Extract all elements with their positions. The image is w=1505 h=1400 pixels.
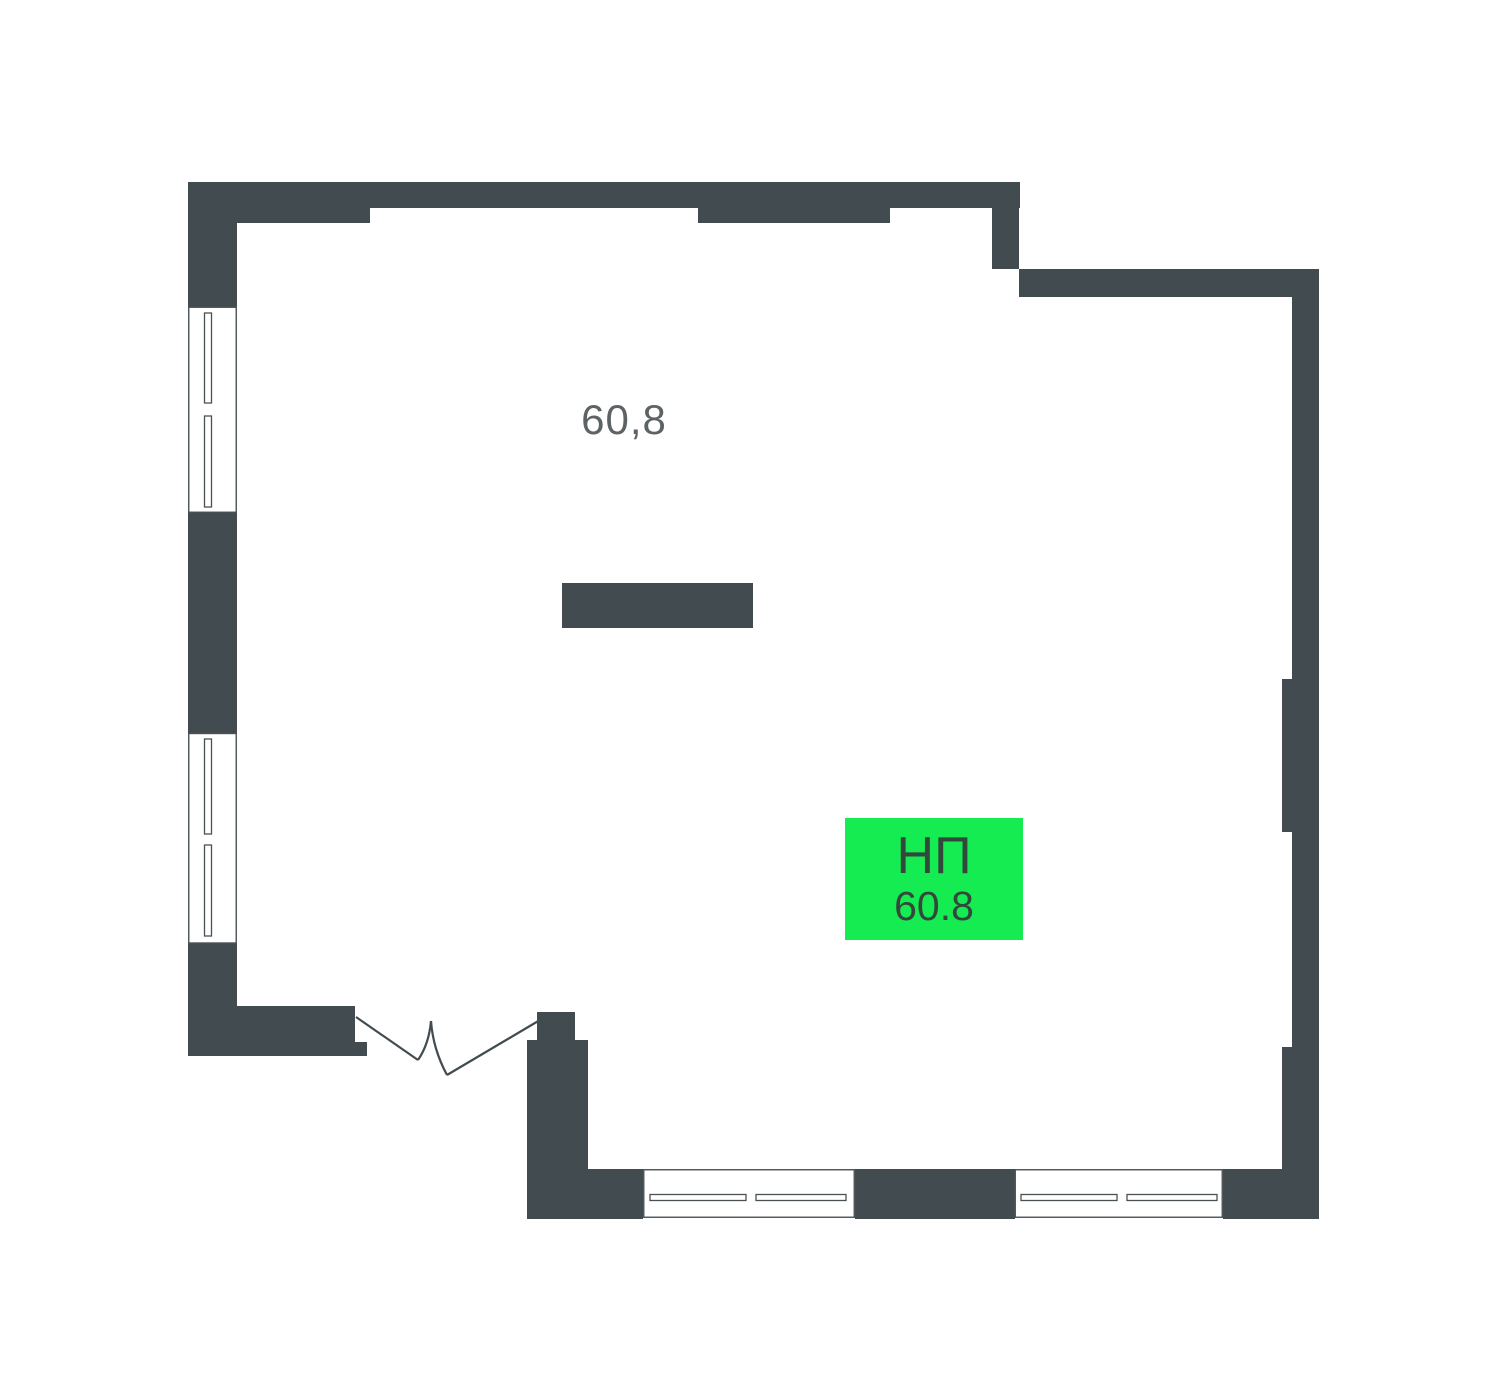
unit-badge[interactable]: НП 60.8	[845, 818, 1023, 940]
wall-segment	[992, 182, 1019, 269]
walls	[188, 182, 1319, 1219]
window-sash	[205, 313, 212, 403]
floor-plan-drawing	[0, 0, 1505, 1400]
unit-area-value: 60.8	[894, 885, 974, 928]
window-sash	[650, 1195, 746, 1201]
window-sash	[756, 1195, 846, 1201]
wall-segment	[698, 182, 890, 223]
window-sash	[205, 416, 212, 507]
door-arc-right	[431, 1021, 447, 1075]
wall-door-jamb	[355, 1042, 367, 1056]
wall-segment	[527, 1040, 588, 1219]
floor-plan: 60,8 НП 60.8	[0, 0, 1505, 1400]
window-sash	[1021, 1195, 1117, 1201]
wall-segment	[188, 1006, 355, 1056]
island-column	[562, 583, 753, 628]
wall-segment	[855, 1169, 1015, 1219]
window-frame	[189, 734, 237, 944]
door-swing	[356, 1017, 540, 1075]
window-left-1	[189, 307, 237, 512]
door-arc-left	[418, 1021, 431, 1060]
window-left-2	[189, 734, 237, 944]
window-sash	[205, 739, 212, 834]
window-frame	[1015, 1170, 1222, 1218]
wall-segment	[1292, 297, 1319, 1219]
room-area-label: 60,8	[544, 399, 704, 441]
window-sash	[1127, 1195, 1217, 1201]
window-frame	[644, 1170, 855, 1218]
unit-type-label: НП	[897, 830, 972, 883]
wall-segment	[1223, 1169, 1319, 1219]
door-leaf-right	[447, 1020, 540, 1075]
wall-pilaster	[1282, 679, 1292, 832]
wall-segment	[1019, 269, 1319, 297]
wall-segment	[188, 512, 237, 733]
window-bottom-2	[1015, 1170, 1222, 1218]
window-bottom-1	[644, 1170, 855, 1218]
window-frame	[189, 307, 237, 512]
wall-segment	[237, 182, 370, 223]
wall-door-jamb	[537, 1012, 575, 1040]
window-sash	[205, 845, 212, 936]
